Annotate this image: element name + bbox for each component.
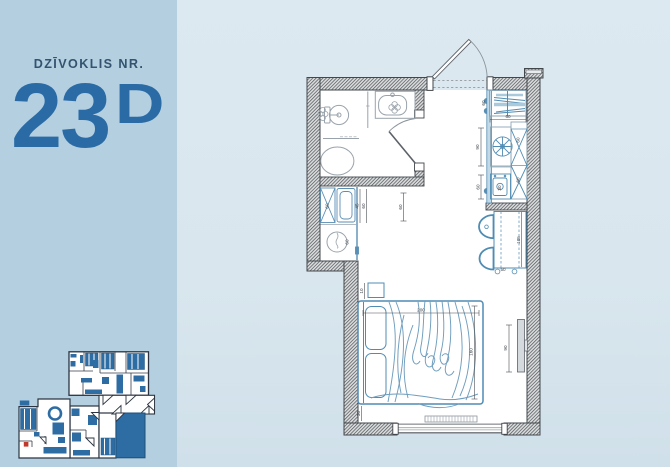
svg-text:60: 60: [476, 184, 481, 190]
svg-text:90: 90: [503, 345, 508, 351]
svg-text:60: 60: [516, 137, 521, 143]
svg-text:60: 60: [481, 100, 486, 106]
svg-text:10: 10: [359, 288, 364, 294]
svg-text:30: 30: [497, 185, 502, 191]
svg-text:60: 60: [505, 114, 511, 119]
svg-text:105: 105: [516, 236, 521, 244]
svg-text:50: 50: [500, 267, 506, 272]
svg-text:60: 60: [516, 177, 521, 183]
svg-text:90: 90: [475, 144, 480, 150]
svg-text:45: 45: [354, 203, 359, 209]
svg-text:60: 60: [345, 239, 350, 245]
svg-text:60: 60: [398, 204, 403, 210]
svg-text:60: 60: [325, 203, 330, 209]
svg-text:60: 60: [361, 203, 366, 209]
svg-text:160: 160: [469, 348, 474, 356]
svg-text:30: 30: [356, 411, 361, 417]
svg-text:200: 200: [417, 308, 425, 313]
